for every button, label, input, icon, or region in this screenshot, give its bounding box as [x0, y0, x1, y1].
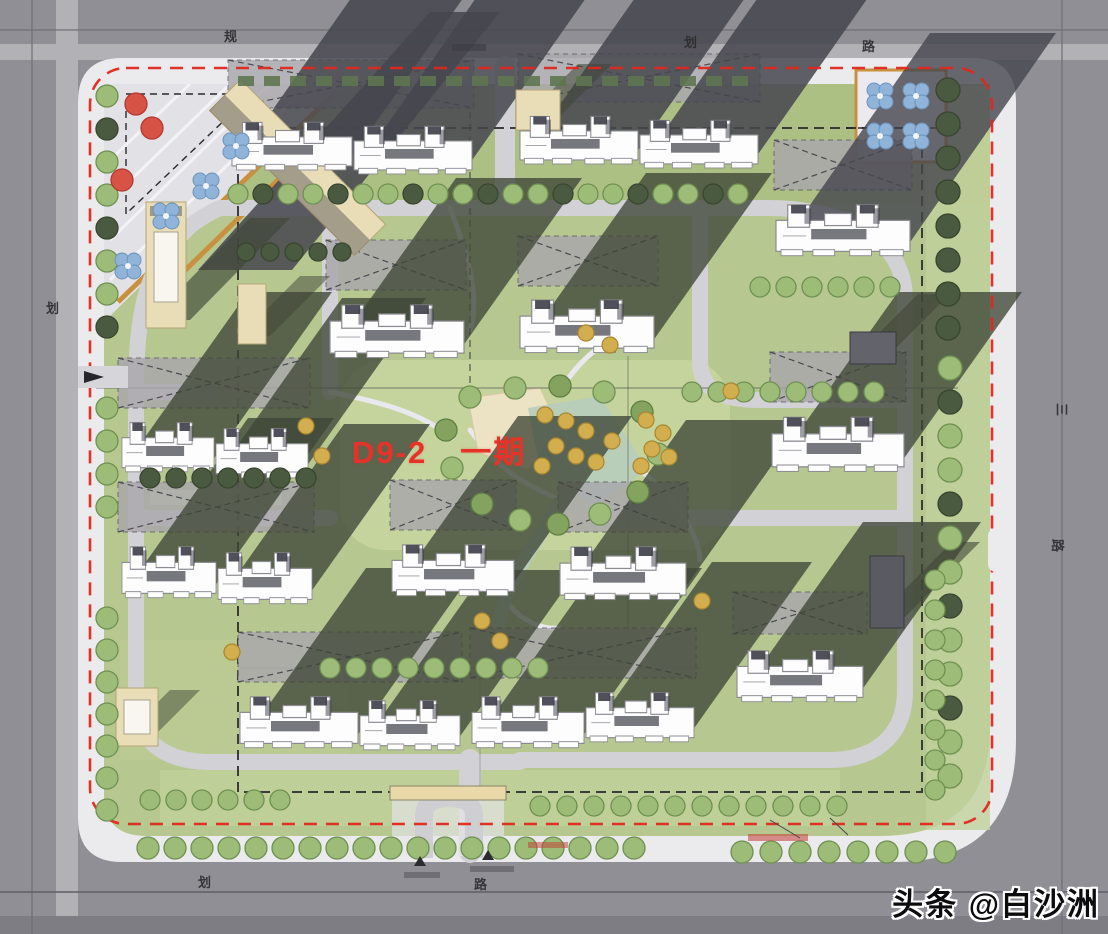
right-access: [988, 528, 1016, 572]
watermark: 头条 @白沙洲: [892, 879, 1100, 924]
road-name-label: 路: [862, 36, 875, 55]
site-plan-drawing: [0, 0, 1108, 934]
site-plan-page: D9-2 一期 头条 @白沙洲 规划路划三路划路: [0, 0, 1108, 934]
road-name-label: 划: [46, 298, 59, 317]
road-name-label: 三: [1053, 403, 1072, 416]
road-name-label: 路: [474, 874, 487, 893]
road-name-label: 规: [224, 26, 237, 45]
road-name-label: 划: [684, 32, 697, 51]
left-sidewalk: [56, 0, 78, 934]
road-name-label: 划: [198, 872, 211, 891]
road-name-label: 路: [1049, 539, 1068, 552]
phase-label: D9-2 一期: [352, 427, 526, 472]
